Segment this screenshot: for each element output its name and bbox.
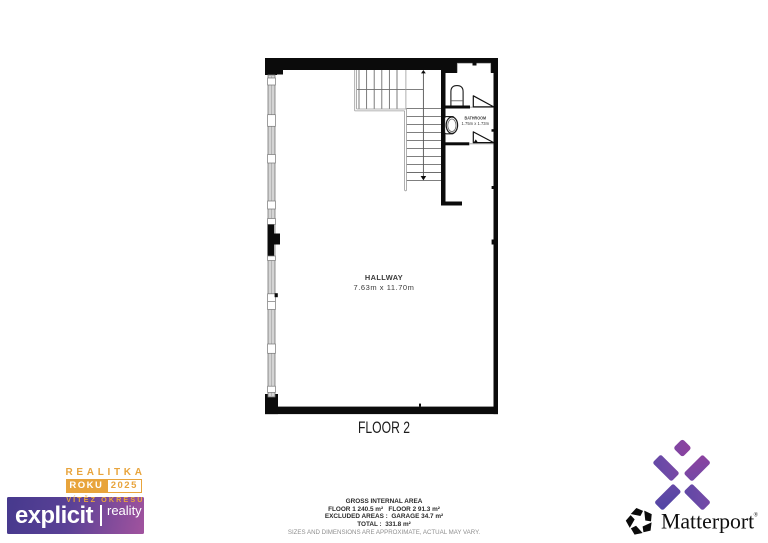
svg-text:7.63m x 11.70m: 7.63m x 11.70m [354,283,415,292]
svg-text:FLOOR 2: FLOOR 2 [358,419,410,437]
svg-text:HALLWAY: HALLWAY [365,273,403,282]
svg-text:1.75m x 1.73m: 1.75m x 1.73m [462,121,490,126]
